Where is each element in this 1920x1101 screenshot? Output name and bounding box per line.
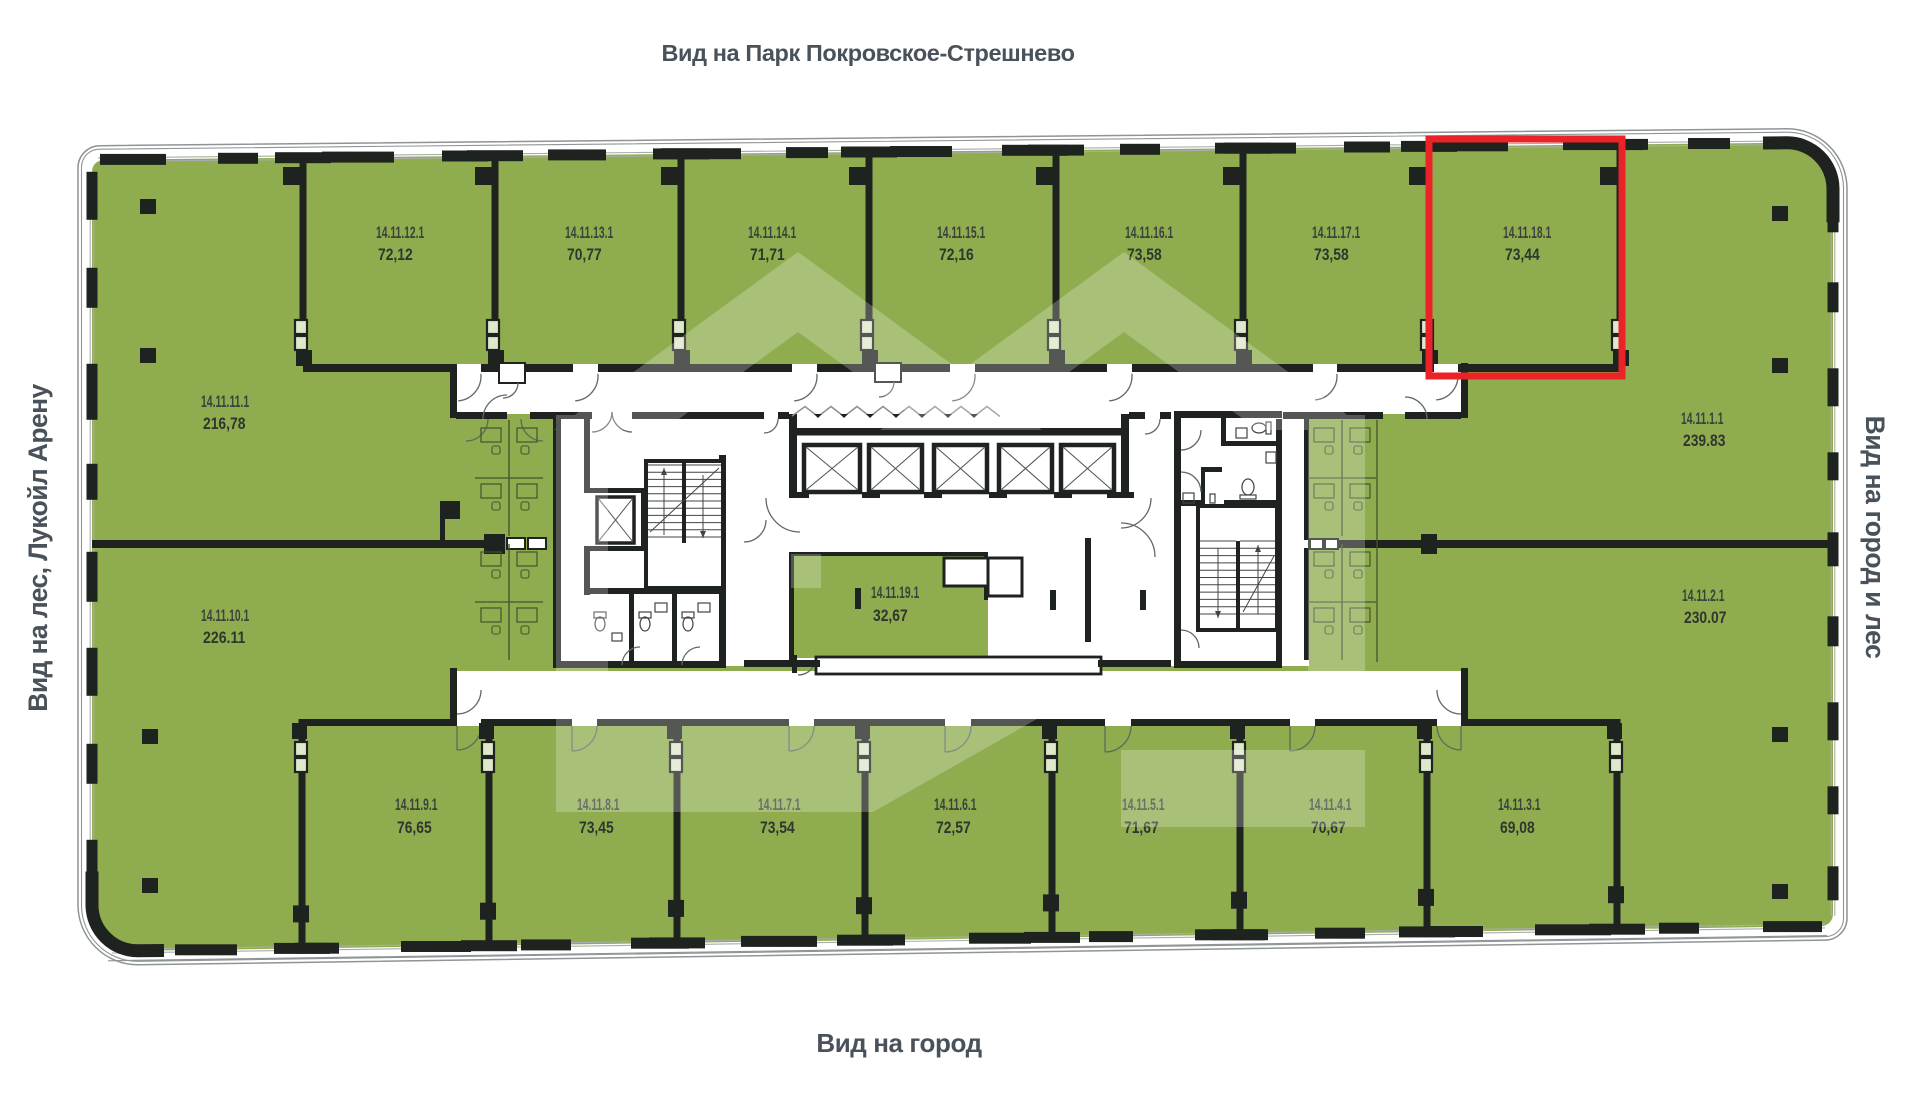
svg-text:226.11: 226.11	[203, 629, 245, 647]
svg-text:239.83: 239.83	[1683, 432, 1725, 450]
svg-text:14.11.13.1: 14.11.13.1	[565, 223, 613, 242]
svg-text:14.11.12.1: 14.11.12.1	[376, 223, 424, 242]
svg-text:14.11.2.1: 14.11.2.1	[1682, 586, 1725, 605]
svg-text:32,67: 32,67	[873, 607, 908, 625]
svg-text:216,78: 216,78	[203, 415, 245, 433]
svg-text:73,44: 73,44	[1505, 246, 1540, 264]
svg-text:Вид на Парк Покровское-Стрешне: Вид на Парк Покровское-Стрешнево	[661, 40, 1074, 66]
svg-text:Вид на лес, Лукойл Арену: Вид на лес, Лукойл Арену	[23, 383, 53, 711]
svg-text:69,08: 69,08	[1500, 819, 1535, 837]
svg-text:70,77: 70,77	[567, 246, 602, 264]
svg-text:71,71: 71,71	[750, 246, 785, 264]
svg-text:14.11.6.1: 14.11.6.1	[934, 795, 977, 814]
svg-text:14.11.3.1: 14.11.3.1	[1498, 795, 1541, 814]
svg-text:72,12: 72,12	[378, 246, 413, 264]
svg-text:73,45: 73,45	[579, 819, 614, 837]
svg-text:Вид на город: Вид на город	[816, 1028, 982, 1058]
svg-text:Вид на город и лес: Вид на город и лес	[1860, 416, 1890, 659]
svg-text:14.11.10.1: 14.11.10.1	[201, 606, 249, 625]
svg-text:76,65: 76,65	[397, 819, 432, 837]
svg-text:14.11.15.1: 14.11.15.1	[937, 223, 985, 242]
svg-text:14.11.18.1: 14.11.18.1	[1503, 223, 1551, 242]
svg-text:73,54: 73,54	[760, 819, 795, 837]
svg-text:14.11.11.1: 14.11.11.1	[201, 392, 249, 411]
svg-text:230.07: 230.07	[1684, 609, 1726, 627]
svg-text:72,57: 72,57	[936, 819, 971, 837]
svg-text:14.11.19.1: 14.11.19.1	[871, 583, 919, 602]
svg-text:73,58: 73,58	[1314, 246, 1349, 264]
svg-text:14.11.9.1: 14.11.9.1	[395, 795, 438, 814]
svg-text:14.11.17.1: 14.11.17.1	[1312, 223, 1360, 242]
svg-text:72,16: 72,16	[939, 246, 974, 264]
svg-text:14.11.1.1: 14.11.1.1	[1681, 409, 1724, 428]
svg-text:14.11.16.1: 14.11.16.1	[1125, 223, 1173, 242]
svg-text:14.11.14.1: 14.11.14.1	[748, 223, 796, 242]
